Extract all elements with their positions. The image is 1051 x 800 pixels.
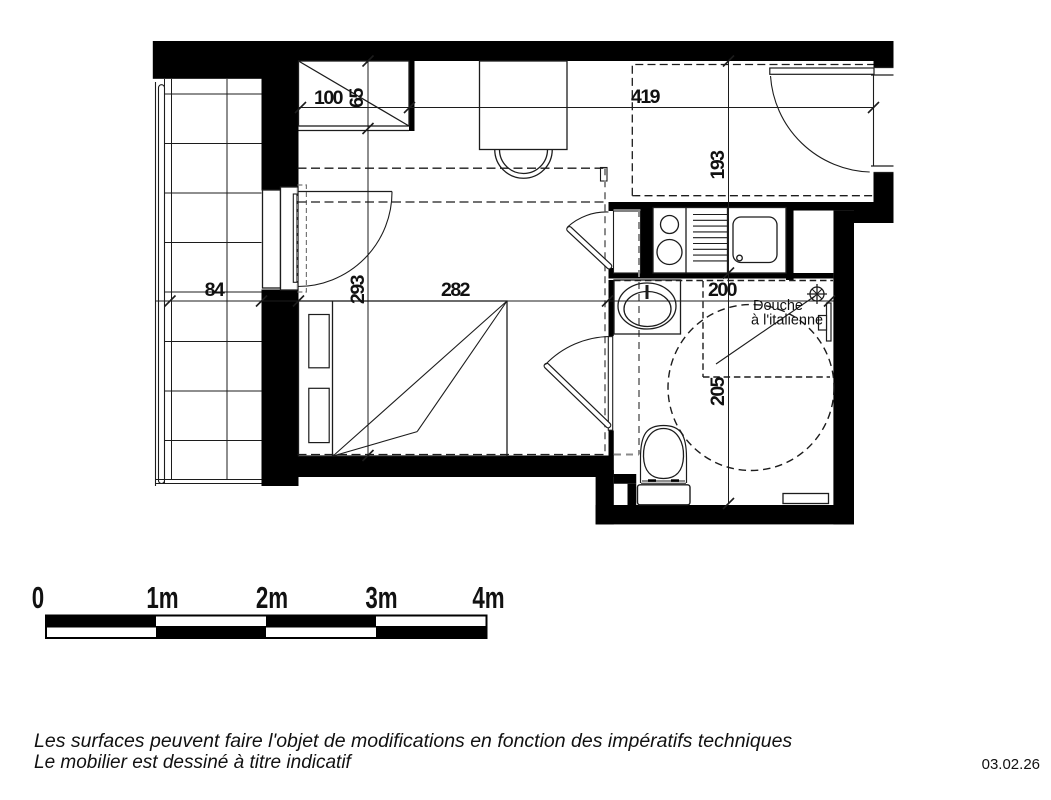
svg-text:419: 419 xyxy=(631,86,661,108)
svg-text:0: 0 xyxy=(32,580,44,614)
svg-text:205: 205 xyxy=(707,376,729,406)
svg-text:84: 84 xyxy=(205,279,225,301)
svg-text:65: 65 xyxy=(346,88,368,108)
svg-text:193: 193 xyxy=(707,150,729,180)
svg-text:293: 293 xyxy=(347,274,369,304)
svg-text:3m: 3m xyxy=(365,580,397,614)
svg-text:4m: 4m xyxy=(472,580,504,614)
svg-text:1m: 1m xyxy=(146,580,178,614)
svg-text:282: 282 xyxy=(441,279,471,301)
svg-text:Les surfaces peuvent faire l'o: Les surfaces peuvent faire l'objet de mo… xyxy=(34,730,792,752)
svg-text:200: 200 xyxy=(708,279,738,301)
svg-text:03.02.26: 03.02.26 xyxy=(982,756,1040,773)
svg-text:à l'italienne: à l'italienne xyxy=(751,313,823,329)
svg-text:Le mobilier est dessiné à titr: Le mobilier est dessiné à titre indicati… xyxy=(34,752,353,773)
svg-text:2m: 2m xyxy=(256,580,288,614)
svg-text:100: 100 xyxy=(314,87,344,109)
